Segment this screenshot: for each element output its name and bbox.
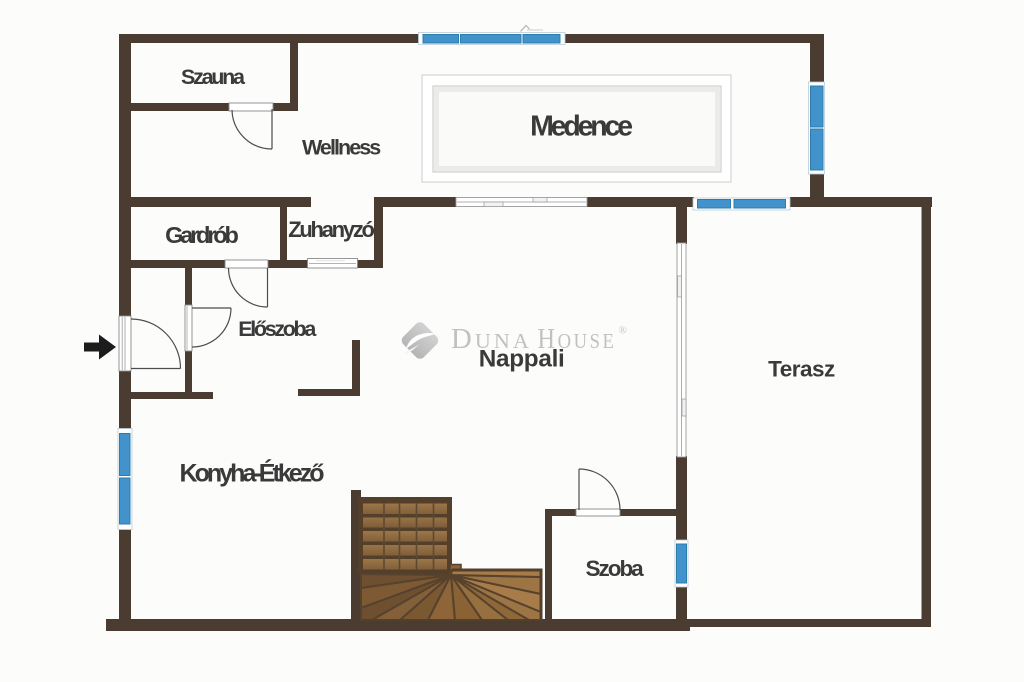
svg-text:Nappali: Nappali <box>479 346 565 373</box>
svg-text:®: ® <box>619 325 627 337</box>
svg-text:Konyha-Étkező: Konyha-Étkező <box>180 458 325 487</box>
svg-text:Wellness: Wellness <box>302 136 381 160</box>
svg-text:Terasz: Terasz <box>768 357 835 382</box>
svg-text:Szauna: Szauna <box>181 65 246 89</box>
svg-text:Medence: Medence <box>530 110 633 142</box>
svg-text:Gardrób: Gardrób <box>165 222 239 248</box>
svg-text:Szoba: Szoba <box>586 556 645 581</box>
svg-text:Zuhanyzó: Zuhanyzó <box>288 217 375 242</box>
svg-text:Előszoba: Előszoba <box>238 317 317 341</box>
